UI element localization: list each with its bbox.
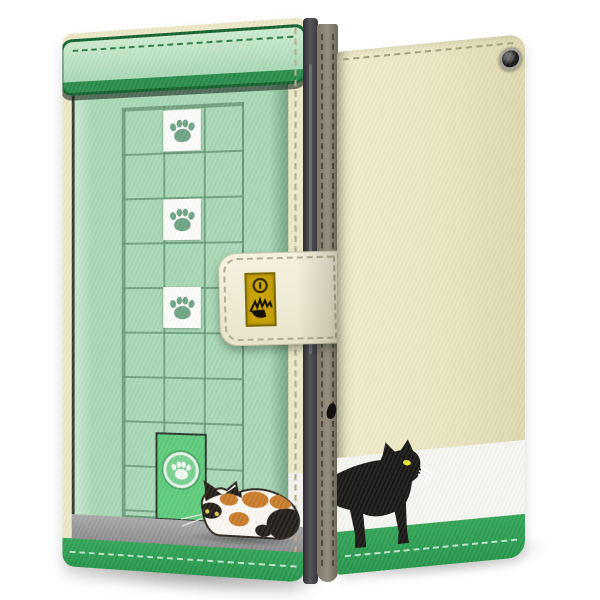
camera-hole-icon (499, 46, 522, 71)
black-cat (337, 435, 433, 558)
back-case (337, 34, 525, 575)
band-stitching (70, 551, 297, 568)
product-photo-wallet-case (0, 0, 600, 600)
panel-highlight (75, 93, 92, 515)
clasp-plate (244, 272, 276, 327)
paw-print-icon (167, 207, 197, 232)
calico-cat-illustration (179, 475, 305, 545)
clasp-shading (296, 250, 342, 344)
awning-stitching (73, 36, 294, 52)
paw-tile (163, 109, 200, 152)
paw-print-icon (167, 295, 197, 319)
left-seam-line (72, 92, 75, 514)
paw-tile (163, 287, 200, 328)
snap-button-icon (246, 274, 274, 325)
calico-cat (179, 475, 305, 545)
clasp-strap (218, 250, 342, 346)
back-stitching (343, 42, 513, 60)
paw-print-icon (167, 118, 197, 143)
paw-tile (163, 198, 200, 240)
black-cat-doodle-icon (250, 299, 272, 318)
black-cat-illustration (337, 435, 433, 558)
